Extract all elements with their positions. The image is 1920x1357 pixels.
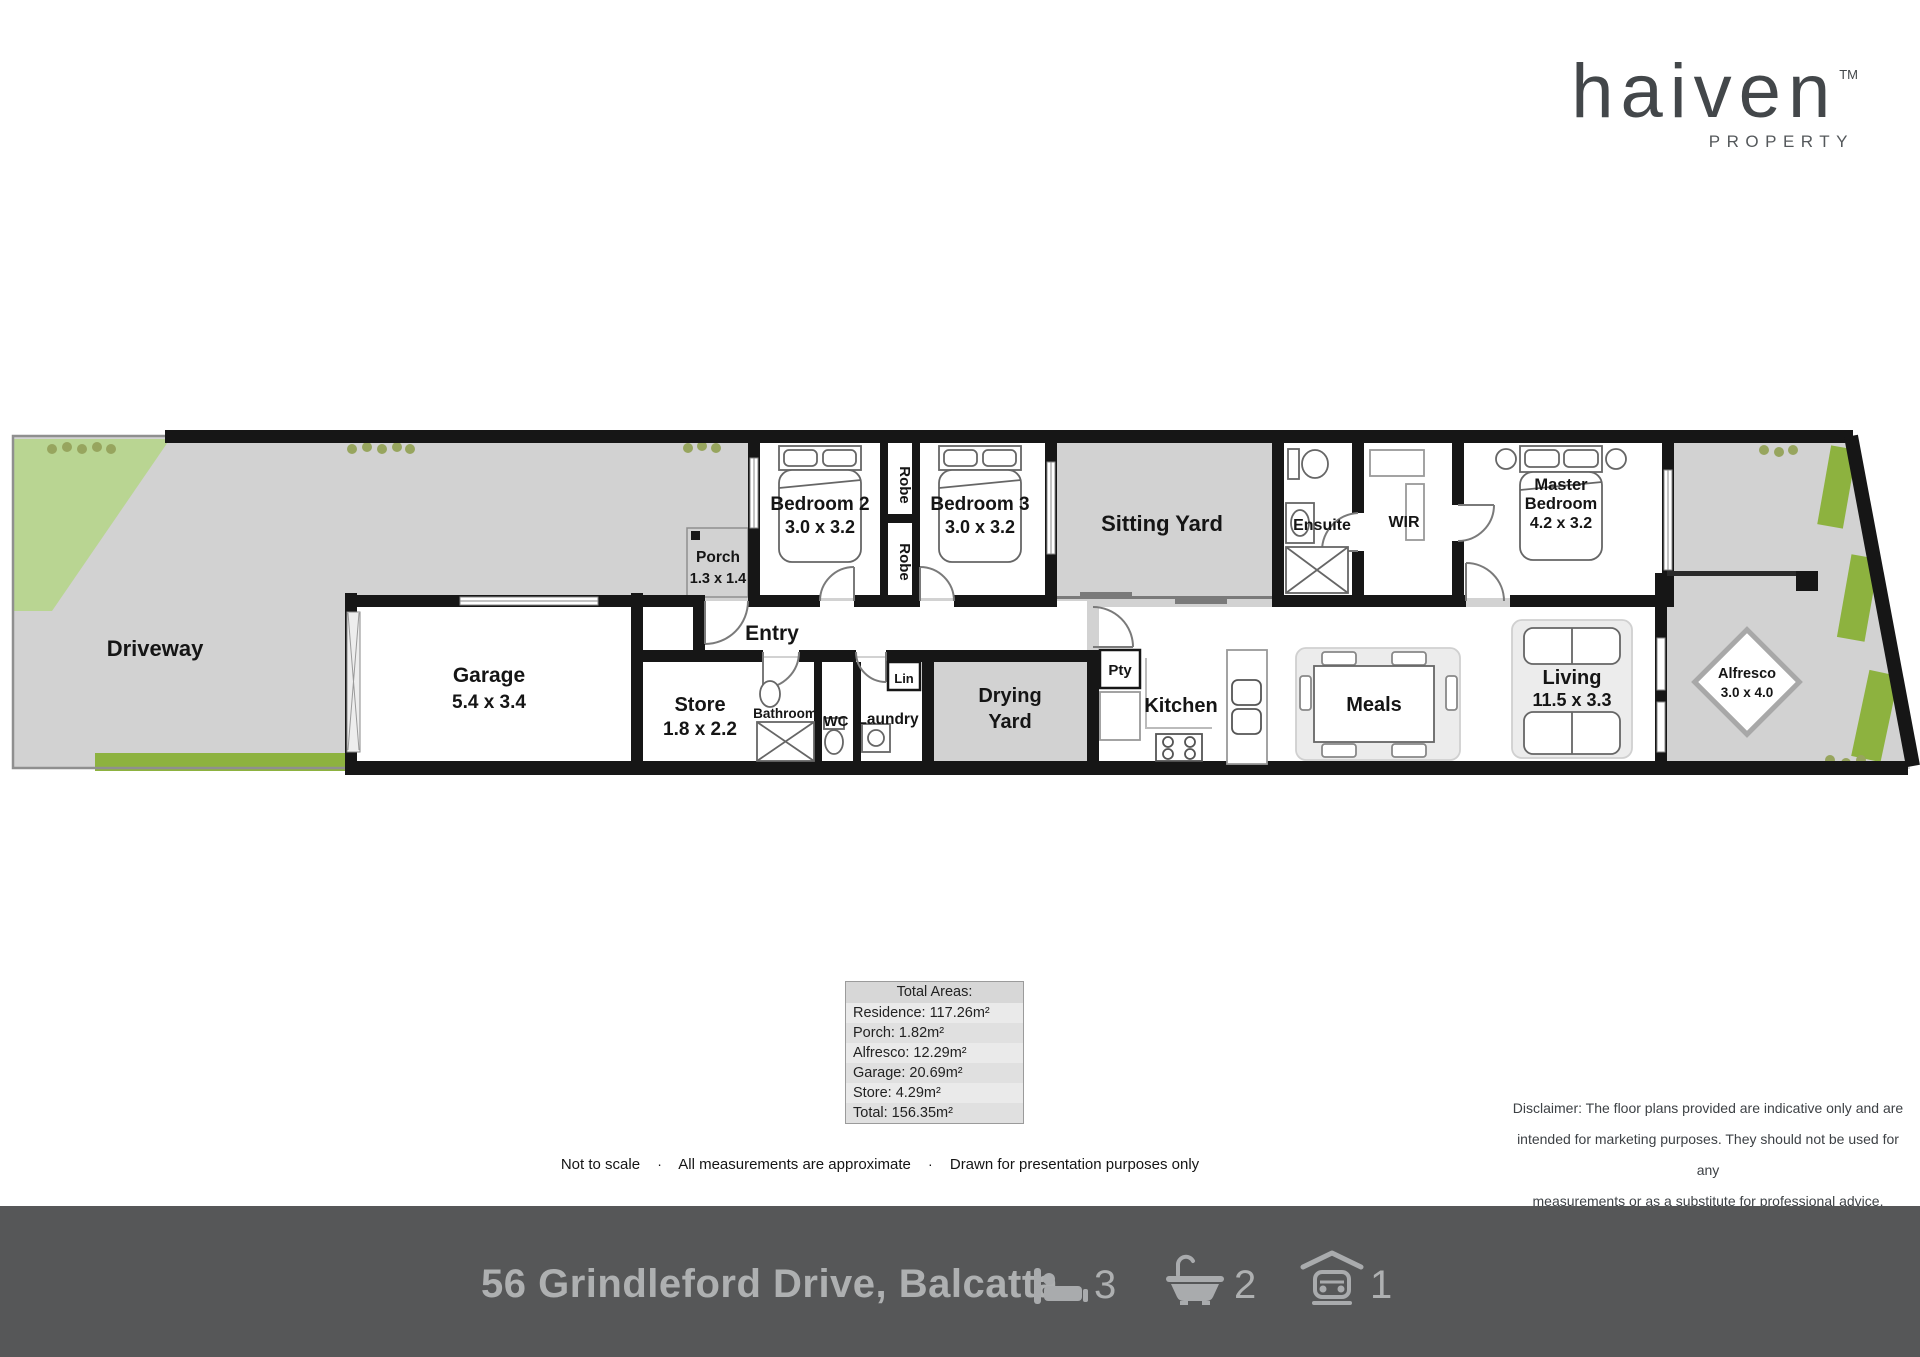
label-store-dims: 1.8 x 2.2: [663, 719, 737, 740]
area-row-porch: Porch: 1.82m²: [846, 1023, 1023, 1043]
property-address: 56 Grindleford Drive, Balcatta: [481, 1262, 1058, 1307]
label-master-2: Bedroom: [1525, 495, 1597, 513]
label-driveway: Driveway: [107, 636, 204, 661]
laundry-fixtures: [862, 724, 890, 752]
label-alfresco-dims: 3.0 x 4.0: [1721, 685, 1774, 700]
label-robe1: Robe: [896, 466, 913, 504]
car-count: 1: [1370, 1263, 1392, 1308]
disclaimer-line-1: Disclaimer: The floor plans provided are…: [1512, 1093, 1904, 1124]
area-row-alfresco: Alfresco: 12.29m²: [846, 1043, 1023, 1063]
living-sofas: [1512, 620, 1632, 758]
label-porch: Porch: [696, 549, 740, 566]
disclaimer-line-2: intended for marketing purposes. They sh…: [1512, 1124, 1904, 1186]
label-bedroom2-dims: 3.0 x 3.2: [785, 517, 855, 537]
label-bedroom2: Bedroom 2: [770, 494, 869, 515]
total-areas-box: Total Areas: Residence: 117.26m² Porch: …: [845, 981, 1024, 1124]
brand-name: haiven: [1571, 49, 1837, 134]
label-porch-dims: 1.3 x 1.4: [690, 571, 746, 587]
label-pty: Pty: [1108, 662, 1132, 679]
label-bathroom: Bathroom: [753, 706, 817, 721]
label-master-1: Master: [1534, 476, 1588, 494]
note-not-to-scale: Not to scale: [561, 1156, 640, 1173]
bath-icon: [1164, 1254, 1226, 1306]
label-kitchen: Kitchen: [1144, 695, 1217, 717]
fridge-recess: [1100, 692, 1140, 740]
label-drying-2: Yard: [988, 711, 1031, 733]
label-store: Store: [674, 694, 725, 716]
car-garage-icon: [1300, 1250, 1364, 1308]
brand-logo: haivenTM PROPERTY: [1571, 52, 1858, 152]
measurement-note: Not to scale · All measurements are appr…: [260, 1156, 1500, 1173]
page: Driveway Garage 5.4 x 3.4 Store 1.8 x 2.…: [0, 0, 1920, 1357]
label-robe2: Robe: [896, 543, 913, 581]
label-lin: Lin: [894, 671, 914, 686]
area-row-store: Store: 4.29m²: [846, 1083, 1023, 1103]
label-laundry: Laundry: [857, 711, 919, 728]
label-meals: Meals: [1346, 694, 1402, 716]
label-bedroom3: Bedroom 3: [930, 494, 1029, 515]
kitchen-island: [1227, 650, 1267, 764]
note-approximate: All measurements are approximate: [678, 1156, 911, 1173]
note-separator: ·: [928, 1156, 933, 1172]
area-row-garage: Garage: 20.69m²: [846, 1063, 1023, 1083]
bed-count: 3: [1094, 1263, 1116, 1308]
disclaimer: Disclaimer: The floor plans provided are…: [1512, 1093, 1904, 1217]
label-living: Living: [1543, 667, 1602, 689]
label-ensuite: Ensuite: [1293, 517, 1351, 534]
label-garage-dims: 5.4 x 3.4: [452, 692, 526, 713]
label-entry: Entry: [745, 622, 799, 645]
label-master-dims: 4.2 x 3.2: [1530, 515, 1592, 532]
label-sitting-yard: Sitting Yard: [1101, 511, 1223, 536]
brand-subtitle: PROPERTY: [1571, 132, 1858, 152]
label-wc: WC: [824, 713, 849, 730]
note-presentation: Drawn for presentation purposes only: [950, 1156, 1199, 1173]
label-wir: WIR: [1388, 514, 1420, 531]
bed-icon: [1032, 1264, 1090, 1308]
note-separator: ·: [657, 1156, 662, 1172]
label-alfresco: Alfresco: [1718, 666, 1776, 682]
garage-door: [347, 612, 360, 752]
trademark: TM: [1839, 67, 1858, 82]
label-bedroom3-dims: 3.0 x 3.2: [945, 517, 1015, 537]
bath-count: 2: [1234, 1263, 1256, 1308]
area-row-total: Total: 156.35m²: [846, 1103, 1023, 1123]
total-areas-title: Total Areas:: [846, 982, 1023, 1003]
cooktop: [1156, 734, 1202, 761]
label-living-dims: 11.5 x 3.3: [1532, 690, 1611, 710]
label-garage: Garage: [453, 664, 525, 687]
area-row-residence: Residence: 117.26m²: [846, 1003, 1023, 1023]
label-drying-1: Drying: [978, 685, 1041, 707]
